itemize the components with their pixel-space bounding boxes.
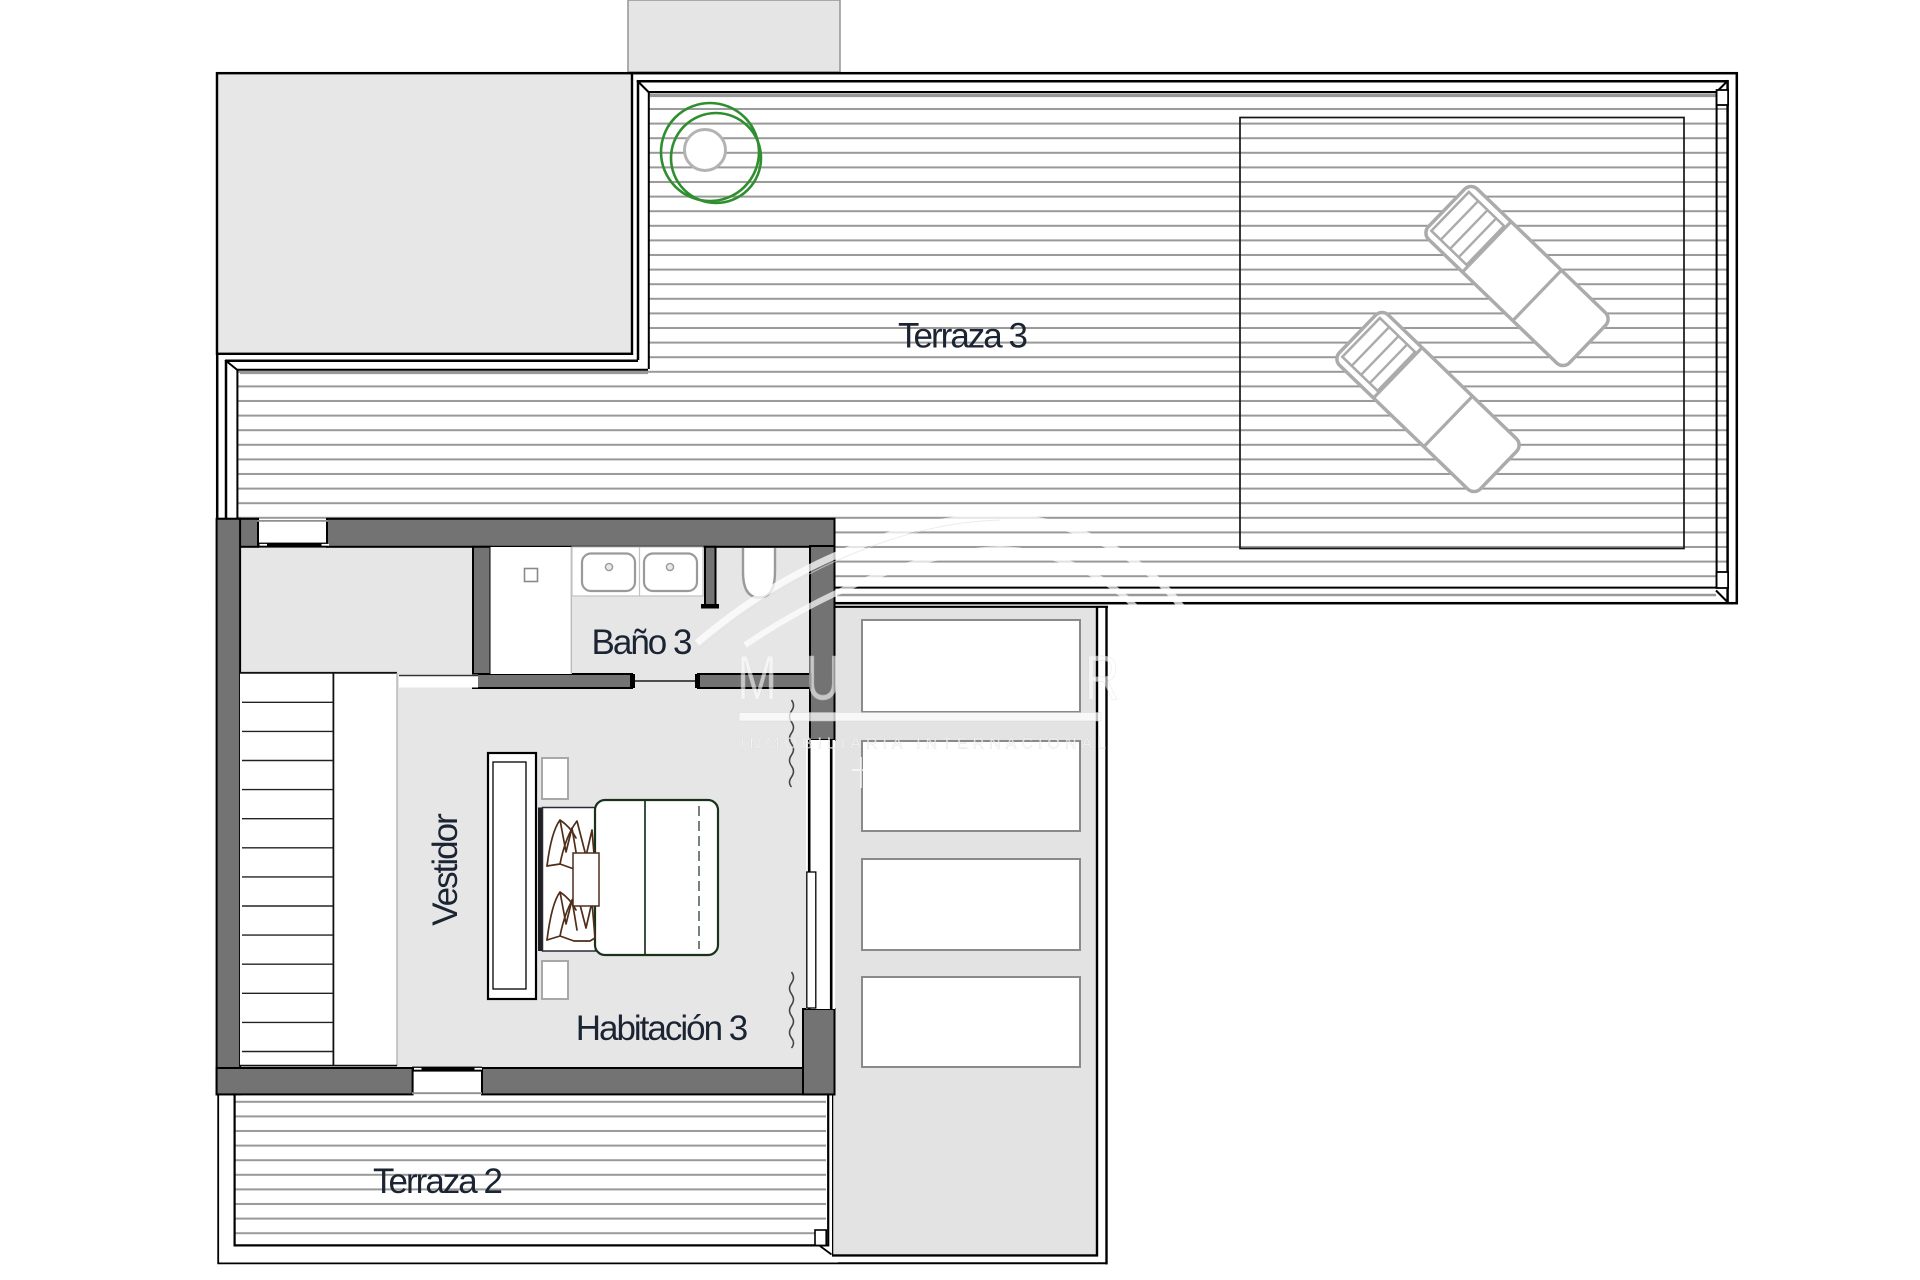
- svg-text:Baño 3: Baño 3: [592, 623, 691, 662]
- svg-text:U: U: [806, 642, 841, 713]
- svg-text:Terraza 3: Terraza 3: [898, 317, 1026, 356]
- svg-text:M: M: [737, 642, 777, 713]
- svg-text:Habitación 3: Habitación 3: [576, 1009, 747, 1048]
- svg-text:R: R: [1085, 642, 1120, 713]
- svg-text:Vestidor: Vestidor: [426, 813, 465, 926]
- svg-text:Terraza 2: Terraza 2: [373, 1162, 501, 1201]
